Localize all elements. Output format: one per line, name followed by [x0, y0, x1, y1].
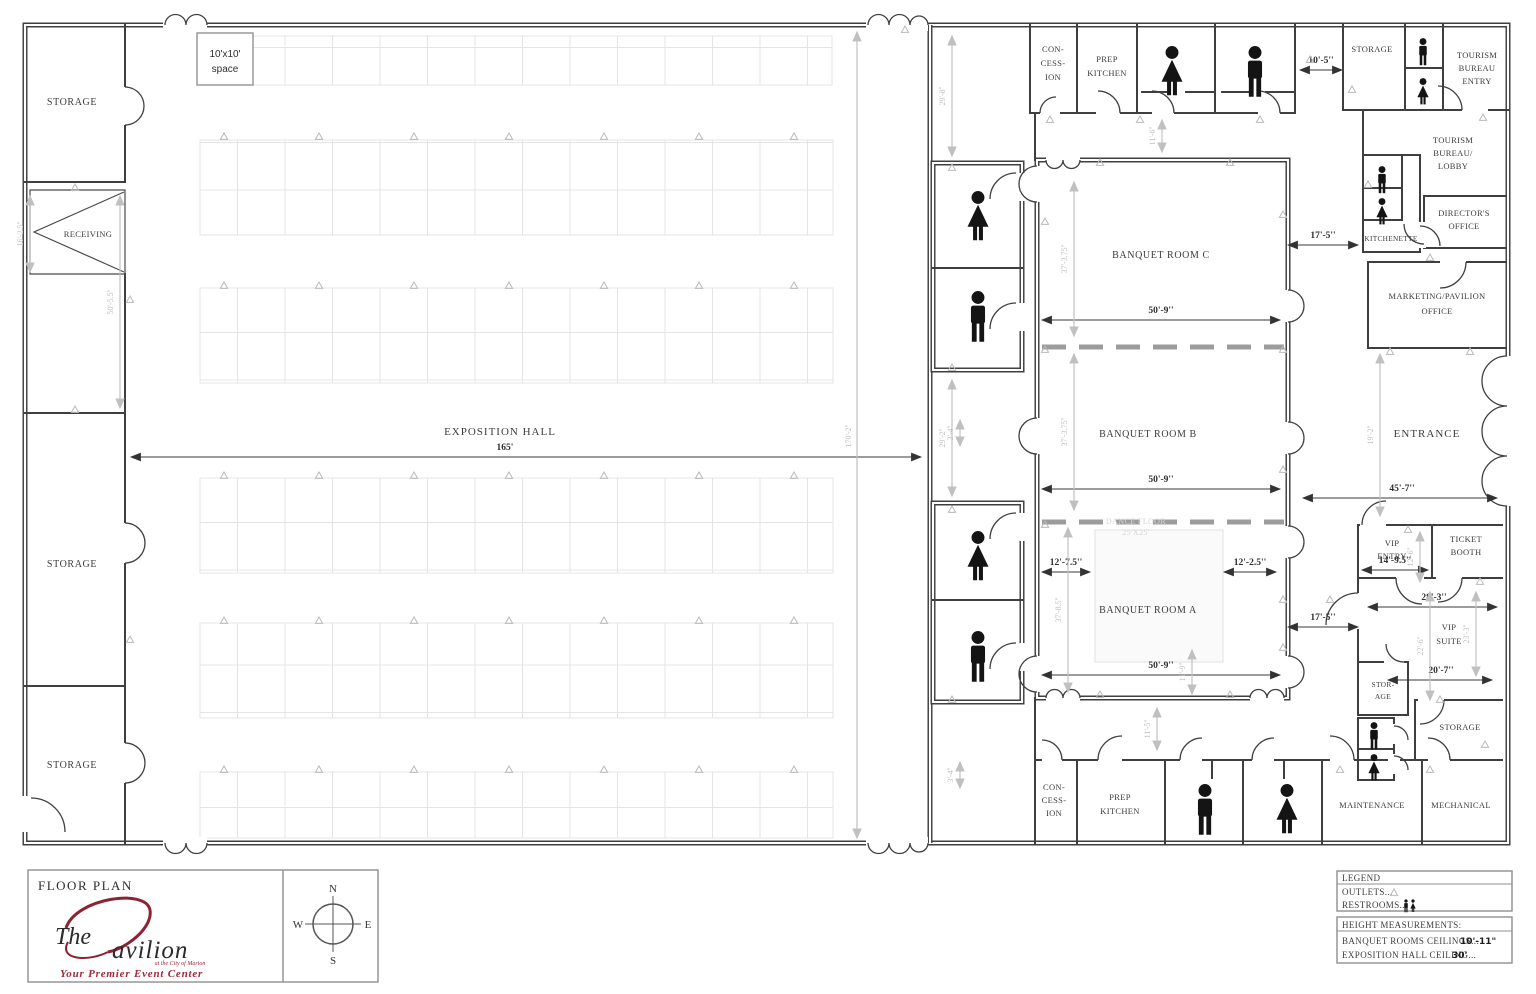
compass-north: N: [329, 883, 337, 895]
room-vip-suite-1: VIP: [1442, 622, 1457, 632]
room-prep-kitchen-top-1: PREP: [1096, 54, 1118, 64]
compass-east: E: [365, 919, 372, 931]
dim-banquet-c-height: 37'-3.75'': [1060, 244, 1069, 274]
man-restroom-icon: [971, 631, 985, 682]
room-prep-kitchen-bottom-1: PREP: [1109, 792, 1131, 802]
outlet-icon: [1481, 741, 1488, 747]
man-restroom-icon: [1419, 38, 1427, 65]
dim-banquet-b-height: 37'-3.75'': [1060, 417, 1069, 447]
room-vip-entry-2: ENTRY: [1377, 551, 1406, 561]
expo-grid-band: [200, 772, 833, 838]
outlet-icon: [1426, 766, 1433, 772]
outlet-icon: [315, 472, 322, 478]
room-concession-top-1: CON-: [1042, 44, 1064, 54]
dim-gap-top: 11'-6'': [1148, 126, 1157, 145]
outlet-icon: [410, 282, 417, 288]
room-concession-bottom-1: CON-: [1043, 782, 1065, 792]
outlet-icon: [505, 617, 512, 623]
outlet-icon: [695, 617, 702, 623]
room-kitchenette: KITCHENETTE: [1364, 234, 1417, 243]
dim-small-a: 3'-4'': [946, 425, 955, 441]
dim-12-7-5: 12'-7.5'': [1050, 558, 1082, 568]
room-ticket-booth-2: BOOTH: [1451, 547, 1482, 557]
room-receiving: RECEIVING: [64, 229, 113, 239]
room-concession-top-3: ION: [1045, 72, 1061, 82]
dim-banquet-a-width: 50'-9'': [1148, 661, 1173, 671]
room-storage-mid-left: STORAGE: [47, 559, 97, 570]
logo-tagline: Your Premier Event Center: [60, 968, 203, 980]
outlet-icon: [1041, 218, 1048, 224]
dance-floor-label-1: DANCE FLOOR: [1106, 517, 1166, 526]
floor-plan-page: 10'x10' space 165' 10'-5'' 17'-5'' 50'-9…: [0, 0, 1536, 994]
man-restroom-icon: [1378, 166, 1386, 193]
dim-banquet-c-width: 50'-9'': [1148, 306, 1173, 316]
outlet-icon: [126, 636, 133, 642]
dance-floor-label-2: 25'X25': [1122, 528, 1150, 537]
dim-10-5: 10'-5'': [1308, 56, 1333, 66]
man-restroom-icon: [1248, 46, 1262, 97]
room-maintenance: MAINTENANCE: [1339, 800, 1405, 810]
room-entrance: ENTRANCE: [1394, 428, 1461, 440]
woman-restroom-icon: [1410, 899, 1415, 911]
legend-title: LEGEND: [1342, 873, 1380, 883]
room-tourism-lobby-1: TOURISM: [1433, 135, 1473, 145]
room-banquet-b: BANQUET ROOM B: [1099, 429, 1197, 440]
room-storage-top-left: STORAGE: [47, 97, 97, 108]
compass-rose: N E S W: [293, 883, 372, 967]
room-directors-office-2: OFFICE: [1448, 221, 1479, 231]
room-ticket-booth-1: TICKET: [1450, 534, 1483, 544]
outlet-icon: [1136, 116, 1143, 122]
legend-expo-ceiling-value: 30': [1452, 951, 1467, 961]
room-concession-bottom-3: ION: [1046, 808, 1062, 818]
outlet-icon: [505, 282, 512, 288]
room-banquet-c: BANQUET ROOM C: [1112, 250, 1210, 261]
woman-restroom-icon: [1368, 754, 1379, 780]
outlet-icon: [1348, 86, 1355, 92]
outlet-icon: [1364, 181, 1371, 187]
dim-gap-bottom: 11'-5'': [1143, 719, 1152, 738]
dim-vip-entry-height: 12'-6'': [1406, 547, 1415, 567]
legend-outlets-label: OUTLETS...: [1342, 887, 1393, 897]
dim-45-7: 45'-7'': [1389, 484, 1414, 494]
dim-banquet-a-height: 37'-8.5'': [1054, 597, 1063, 623]
outlet-icon: [790, 472, 797, 478]
outlet-icon: [695, 133, 702, 139]
outlet-icon: [600, 472, 607, 478]
dim-receiving-height: 16'-2.5'': [16, 221, 25, 247]
woman-restroom-icon: [968, 191, 989, 240]
woman-restroom-icon: [1277, 784, 1298, 833]
compass-west: W: [293, 919, 304, 931]
outlet-icon: [1426, 254, 1433, 260]
outlet-icon: [315, 617, 322, 623]
dim-17-5-bottom: 17'-5'': [1310, 613, 1335, 623]
outlet-icon: [1404, 526, 1411, 532]
room-concession-bottom-2: CESS-: [1042, 795, 1067, 805]
dim-expo-height: 170'-2'': [844, 424, 853, 448]
dim-entrance-height: 19'-2'': [1366, 425, 1375, 445]
man-restroom-icon: [1370, 722, 1378, 749]
outlet-icon: [695, 472, 702, 478]
legend-block: LEGEND OUTLETS... RESTROOMS... HEIGHT ME…: [1337, 871, 1512, 963]
outlet-icon: [71, 406, 78, 412]
dim-left-alcove: 50'-5.5'': [106, 289, 115, 315]
dim-20-7: 20'-7'': [1428, 666, 1453, 676]
legend-height-title: HEIGHT MEASUREMENTS:: [1342, 920, 1462, 930]
logo-the: The: [55, 924, 91, 950]
dim-small-b: 3'-4'': [946, 767, 955, 783]
dance-floor-area: [1095, 530, 1223, 662]
expo-grid-band: [200, 288, 833, 383]
space-callout-line1: 10'x10': [209, 49, 240, 60]
logo-pavilion: avilion: [112, 937, 188, 964]
outlet-icon: [948, 506, 955, 512]
expo-grid-band: [200, 623, 833, 718]
outlet-icon: [600, 617, 607, 623]
outlet-icon: [220, 133, 227, 139]
outlet-icon: [695, 766, 702, 772]
woman-restroom-icon: [1162, 46, 1183, 95]
outlet-icon: [315, 766, 322, 772]
dim-28-3: 28'-3'': [1421, 593, 1446, 603]
room-storage-bottom-right: STORAGE: [1439, 722, 1480, 732]
outlet-icon: [126, 296, 133, 302]
room-marketing-office-2: OFFICE: [1421, 306, 1452, 316]
room-tourism-lobby-3: LOBBY: [1438, 161, 1468, 171]
legend-restrooms-label: RESTROOMS...: [1342, 900, 1408, 910]
floor-plan-canvas: 10'x10' space 165' 10'-5'' 17'-5'' 50'-9…: [0, 0, 1536, 994]
outlet-icon: [695, 282, 702, 288]
outlet-icon: [790, 766, 797, 772]
outlet-icon: [600, 766, 607, 772]
room-marketing-office-1: MARKETING/PAVILION: [1388, 291, 1485, 301]
dim-banquet-a-inner: 11'-9'': [1178, 662, 1187, 681]
outlet-icon: [410, 766, 417, 772]
outlet-icon: [505, 472, 512, 478]
outlet-icon: [505, 766, 512, 772]
expo-grid-band: [200, 140, 833, 235]
dim-banquet-b-width: 50'-9'': [1148, 475, 1173, 485]
room-vip-entry-1: VIP: [1385, 538, 1400, 548]
outlet-icon: [220, 617, 227, 623]
woman-restroom-icon: [968, 531, 989, 580]
room-storage-top-right: STORAGE: [1351, 44, 1392, 54]
outlet-icon: [1326, 596, 1333, 602]
dim-17-5-top: 17'-5'': [1310, 231, 1335, 241]
outlet-icon: [220, 766, 227, 772]
room-storage-bottom-left: STORAGE: [47, 760, 97, 771]
room-prep-kitchen-top-2: KITCHEN: [1087, 68, 1126, 78]
logo-subtext: at the City of Marion: [155, 960, 206, 967]
room-vip-suite-2: SUITE: [1436, 636, 1462, 646]
legend-banquet-ceiling-label: BANQUET ROOMS CEILINGS...: [1342, 936, 1479, 946]
dim-top-corridor: 29'-8'': [938, 86, 947, 106]
expo-grid-band: [252, 36, 832, 85]
compass-south: S: [330, 955, 336, 967]
outlet-icon: [790, 282, 797, 288]
outlet-icon: [600, 133, 607, 139]
room-tourism-entry-2: BUREAU: [1459, 63, 1496, 73]
expo-grid-band: [200, 478, 833, 573]
room-mechanical: MECHANICAL: [1431, 800, 1491, 810]
outlet-icon: [1336, 766, 1343, 772]
room-concession-top-2: CESS-: [1041, 58, 1066, 68]
outlet-icon: [220, 472, 227, 478]
room-exposition-hall: EXPOSITION HALL: [444, 426, 556, 438]
outlet-icon: [600, 282, 607, 288]
outlet-icon: [315, 282, 322, 288]
outlet-icon: [410, 472, 417, 478]
outlet-icon: [410, 133, 417, 139]
man-restroom-icon: [1198, 784, 1212, 835]
outlet-icon: [315, 133, 322, 139]
outlet-icon: [410, 617, 417, 623]
outlet-icon: [505, 133, 512, 139]
room-tourism-entry-1: TOURISM: [1457, 50, 1497, 60]
room-tourism-entry-3: ENTRY: [1462, 76, 1491, 86]
dim-vip-suite-h1: 22'-6'': [1416, 636, 1425, 656]
room-storage-vip-2: AGE: [1375, 692, 1391, 701]
woman-restroom-icon: [1417, 78, 1428, 104]
room-storage-vip-1: STOR-: [1371, 680, 1394, 689]
title-floor-plan: FLOOR PLAN: [38, 878, 133, 893]
room-tourism-lobby-2: BUREAU/: [1433, 148, 1473, 158]
dim-12-2-5: 12'-2.5'': [1234, 558, 1266, 568]
dim-vip-suite-h2: 23'-3'': [1462, 624, 1471, 644]
outlet-icon: [220, 282, 227, 288]
space-callout-line2: space: [212, 64, 239, 75]
outlet-icon: [790, 617, 797, 623]
room-directors-office-1: DIRECTOR'S: [1438, 208, 1490, 218]
outlet-icon: [790, 133, 797, 139]
dim-expo-width: 165': [497, 443, 514, 453]
room-prep-kitchen-bottom-2: KITCHEN: [1100, 806, 1139, 816]
legend-banquet-ceiling-value: 10'-11": [1460, 937, 1496, 947]
room-banquet-a: BANQUET ROOM A: [1099, 605, 1197, 616]
title-block: FLOOR PLAN The avilion at the City of Ma…: [28, 870, 378, 982]
man-restroom-icon: [971, 291, 985, 342]
